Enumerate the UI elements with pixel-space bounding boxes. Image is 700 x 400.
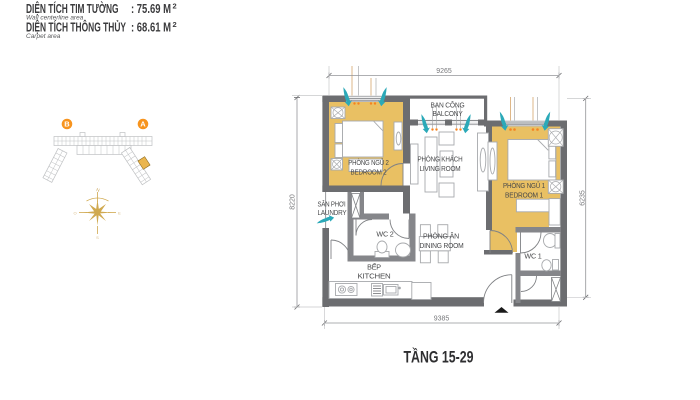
svg-text:: 68.61 M: : 68.61 M bbox=[131, 21, 171, 35]
svg-text:PHÒNG ĂN: PHÒNG ĂN bbox=[423, 232, 459, 241]
svg-text:DINING ROOM: DINING ROOM bbox=[420, 241, 464, 250]
svg-text:WC 2: WC 2 bbox=[376, 230, 393, 239]
svg-text:LIVING ROOM: LIVING ROOM bbox=[420, 164, 461, 173]
svg-text:9265: 9265 bbox=[436, 68, 452, 75]
svg-text:PHÒNG NGỦ 1: PHÒNG NGỦ 1 bbox=[503, 181, 545, 190]
svg-text:KITCHEN: KITCHEN bbox=[358, 272, 391, 281]
svg-text:Carpet area: Carpet area bbox=[26, 33, 61, 40]
svg-text:BALCONY: BALCONY bbox=[433, 109, 463, 118]
svg-text:9385: 9385 bbox=[434, 316, 450, 323]
svg-text:PHÒNG KHÁCH: PHÒNG KHÁCH bbox=[418, 155, 463, 164]
svg-text:S: S bbox=[96, 235, 99, 240]
svg-text:2: 2 bbox=[173, 20, 177, 29]
svg-text:E: E bbox=[118, 211, 121, 216]
svg-text:LAUNDRY: LAUNDRY bbox=[318, 208, 347, 217]
svg-text:PHÒNG NGỦ 2: PHÒNG NGỦ 2 bbox=[348, 158, 389, 167]
svg-text:BEDROOM 1: BEDROOM 1 bbox=[505, 190, 543, 199]
svg-text:BEDROOM 2: BEDROOM 2 bbox=[351, 167, 387, 176]
svg-text:: 75.69 M: : 75.69 M bbox=[131, 2, 171, 16]
svg-text:8220: 8220 bbox=[290, 194, 297, 210]
svg-text:B: B bbox=[64, 120, 70, 129]
svg-text:O: O bbox=[73, 211, 76, 216]
svg-text:A: A bbox=[140, 120, 146, 129]
svg-text:TẦNG 15-29: TẦNG 15-29 bbox=[404, 348, 474, 367]
svg-text:6235: 6235 bbox=[579, 190, 586, 206]
svg-text:BẾP: BẾP bbox=[367, 262, 381, 272]
svg-text:N: N bbox=[96, 187, 100, 193]
svg-text:WC 1: WC 1 bbox=[524, 252, 541, 261]
svg-text:2: 2 bbox=[173, 2, 177, 11]
